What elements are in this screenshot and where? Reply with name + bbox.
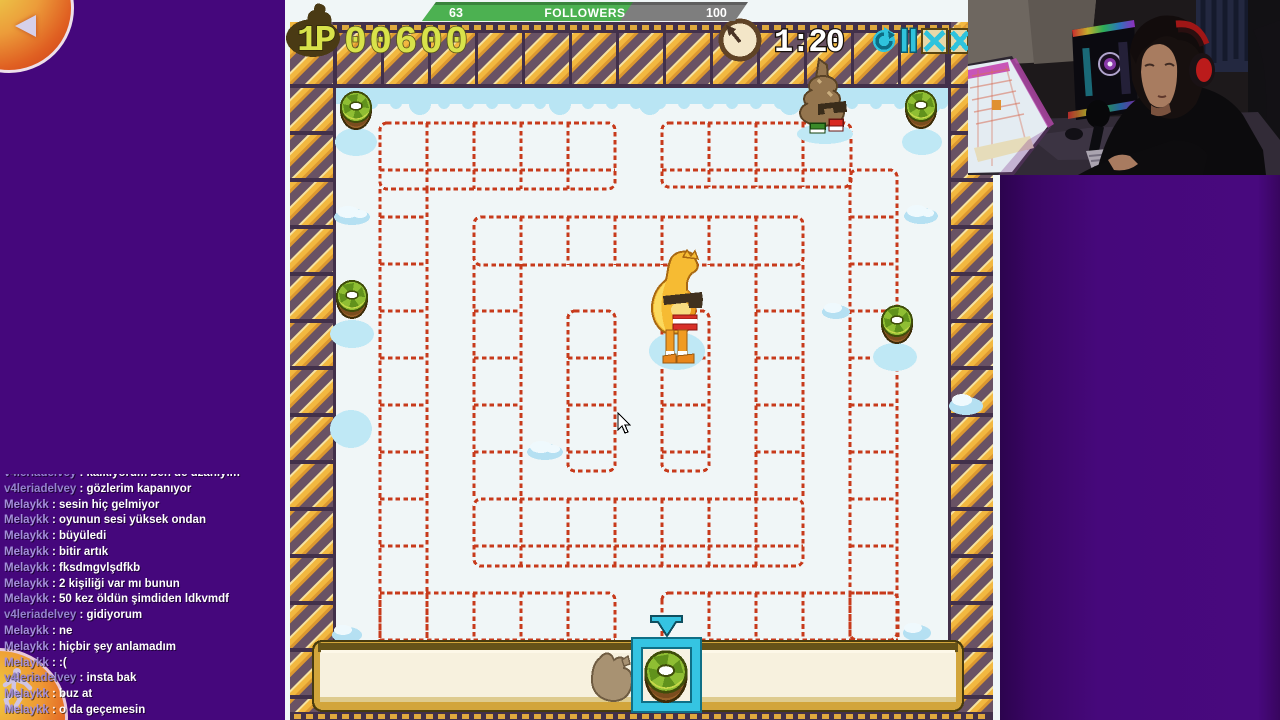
svg-text:63: 63 bbox=[449, 6, 463, 20]
svg-text:1P: 1P bbox=[297, 20, 336, 61]
svg-text:00600: 00600 bbox=[344, 21, 471, 64]
svg-text:100: 100 bbox=[706, 6, 727, 20]
svg-text:1:20: 1:20 bbox=[774, 24, 844, 61]
svg-text:FOLLOWERS: FOLLOWERS bbox=[544, 6, 625, 20]
